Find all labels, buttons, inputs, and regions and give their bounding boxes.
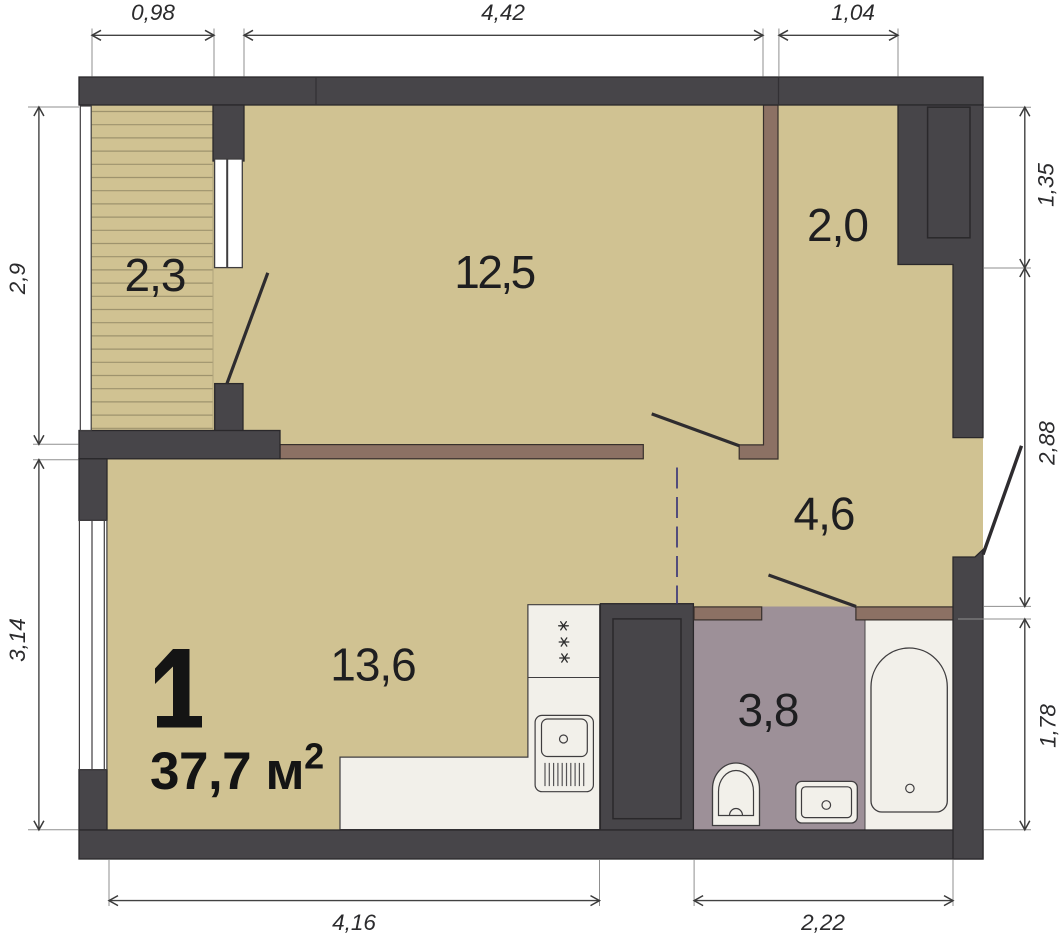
svg-text:2,3: 2,3: [125, 249, 186, 301]
svg-text:2,88: 2,88: [1035, 421, 1060, 466]
svg-text:3,14: 3,14: [5, 618, 30, 662]
svg-text:12,5: 12,5: [454, 246, 534, 298]
svg-text:0,98: 0,98: [131, 0, 175, 25]
svg-text:3,8: 3,8: [738, 684, 799, 736]
svg-text:2,22: 2,22: [800, 910, 845, 935]
svg-text:1,78: 1,78: [1036, 704, 1061, 748]
svg-text:2,9: 2,9: [5, 262, 30, 295]
svg-text:1,35: 1,35: [1034, 163, 1059, 207]
svg-text:37,7 м2: 37,7 м2: [150, 735, 324, 801]
svg-text:4,16: 4,16: [332, 910, 376, 935]
svg-text:13,6: 13,6: [330, 639, 416, 691]
svg-text:2,0: 2,0: [807, 199, 868, 251]
svg-text:1,04: 1,04: [831, 0, 875, 25]
svg-text:4,6: 4,6: [794, 488, 855, 540]
svg-text:4,42: 4,42: [481, 0, 525, 25]
